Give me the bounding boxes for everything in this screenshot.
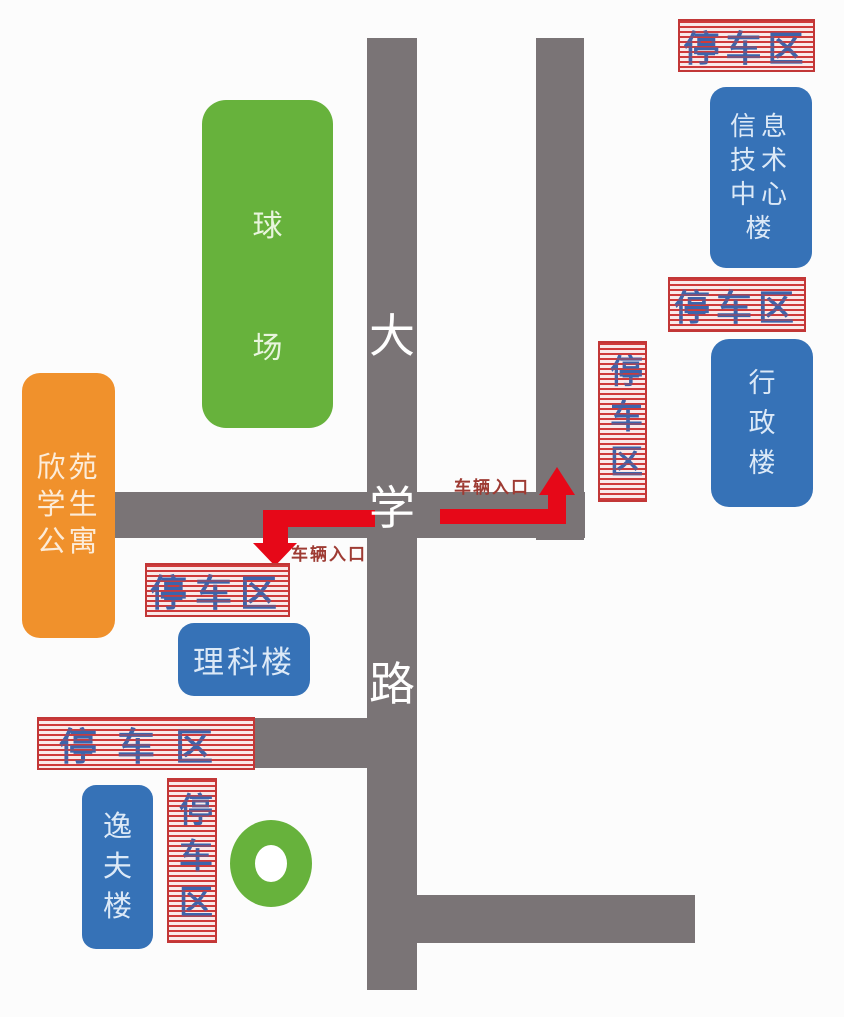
parking-banner-right-roadside: 停车区 [598, 341, 647, 502]
road-horizontal-stub [250, 718, 367, 768]
yifu-label-line: 逸 [103, 807, 132, 847]
yifu-label-line: 楼 [103, 887, 132, 927]
road-name-char-da: 大 [367, 314, 417, 360]
roundabout-circle [230, 820, 312, 907]
apartment-label-line: 学生 [36, 487, 100, 524]
parking-banner-top-right: 停车区 [678, 19, 815, 72]
parking-banner-label: 停车区 [59, 716, 233, 771]
apartment-label-line: 公寓 [36, 524, 100, 561]
road-horizontal-middle [113, 492, 585, 538]
it-center-building: 信息 技术 中心 楼 [710, 87, 812, 268]
it-center-label-line: 技术 [730, 144, 792, 178]
parking-banner-yifu-east: 停车区 [167, 778, 217, 943]
road-vertical-right [536, 38, 584, 540]
it-center-label-line: 楼 [745, 212, 776, 246]
road-name-char-lu: 路 [367, 662, 417, 708]
ballfield-label-line: 场 [253, 323, 283, 367]
ballfield: 球 场 [202, 100, 333, 428]
campus-map: 大 学 路 球 场 欣苑 学生 公寓 信息 技术 中心 楼 行 政 楼 理科楼 … [0, 0, 844, 1017]
parking-banner-label: 停车区 [168, 792, 217, 930]
parking-banner-label: 停车区 [150, 563, 285, 617]
it-center-label-line: 信息 [730, 110, 792, 144]
science-building-label: 理科楼 [193, 637, 295, 682]
parking-banner-label: 停车区 [599, 354, 647, 489]
parking-banner-science-north: 停车区 [145, 563, 290, 617]
admin-label-line: 政 [749, 403, 776, 443]
road-name-char-xue: 学 [367, 486, 417, 532]
admin-label-line: 楼 [749, 443, 776, 483]
yifu-building: 逸 夫 楼 [82, 785, 153, 949]
ballfield-label-line: 球 [253, 201, 283, 245]
parking-banner-southwest: 停车区 [37, 717, 255, 770]
it-center-label-line: 中心 [730, 178, 792, 212]
parking-banner-label: 停车区 [683, 20, 809, 72]
west-entrance-label: 车辆入口 [291, 540, 367, 565]
yifu-label-line: 夫 [103, 847, 132, 887]
apartment-label-line: 欣苑 [36, 450, 100, 487]
east-entrance-label: 车辆入口 [454, 473, 530, 498]
science-building: 理科楼 [178, 623, 310, 696]
student-apartment: 欣苑 学生 公寓 [22, 373, 115, 638]
parking-banner-right-upper: 停车区 [668, 277, 806, 332]
admin-label-line: 行 [749, 363, 776, 403]
parking-banner-label: 停车区 [674, 279, 800, 331]
admin-building: 行 政 楼 [711, 339, 813, 507]
road-horizontal-bottom [417, 895, 695, 943]
